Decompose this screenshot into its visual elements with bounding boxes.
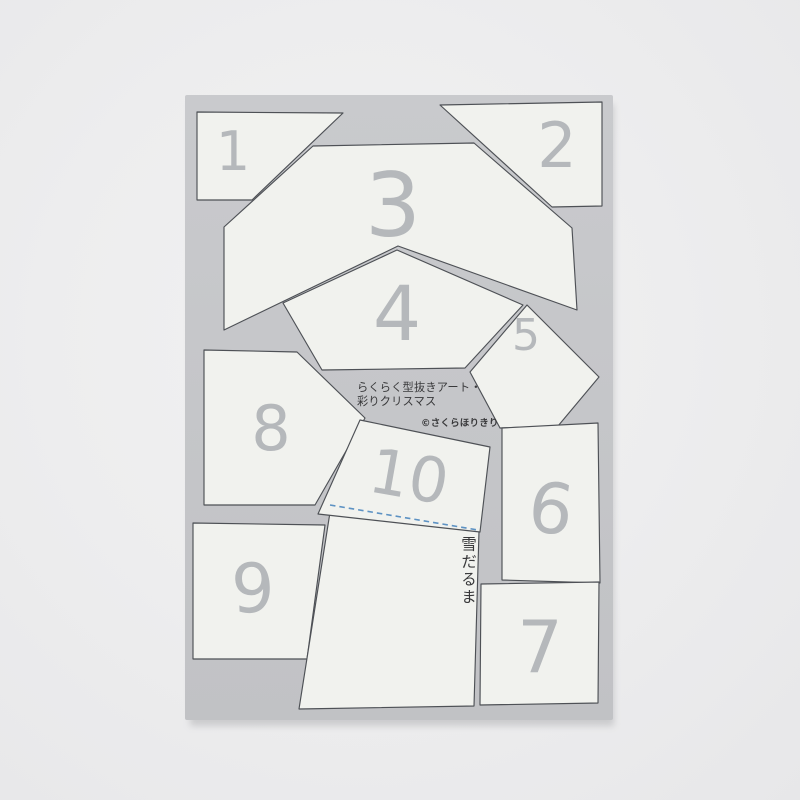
photo-of-craft-sheet: 1 2 3 4 5 6 7 8 9 10 らくらく型抜きアート・ 彩りクリスマス… [0, 0, 800, 800]
snowman-body-piece-shape [299, 506, 479, 709]
craft-sheet-drawing [0, 0, 800, 800]
piece-7-shape [480, 582, 599, 705]
piece-9-shape [193, 523, 325, 659]
piece-6-shape [502, 423, 600, 583]
